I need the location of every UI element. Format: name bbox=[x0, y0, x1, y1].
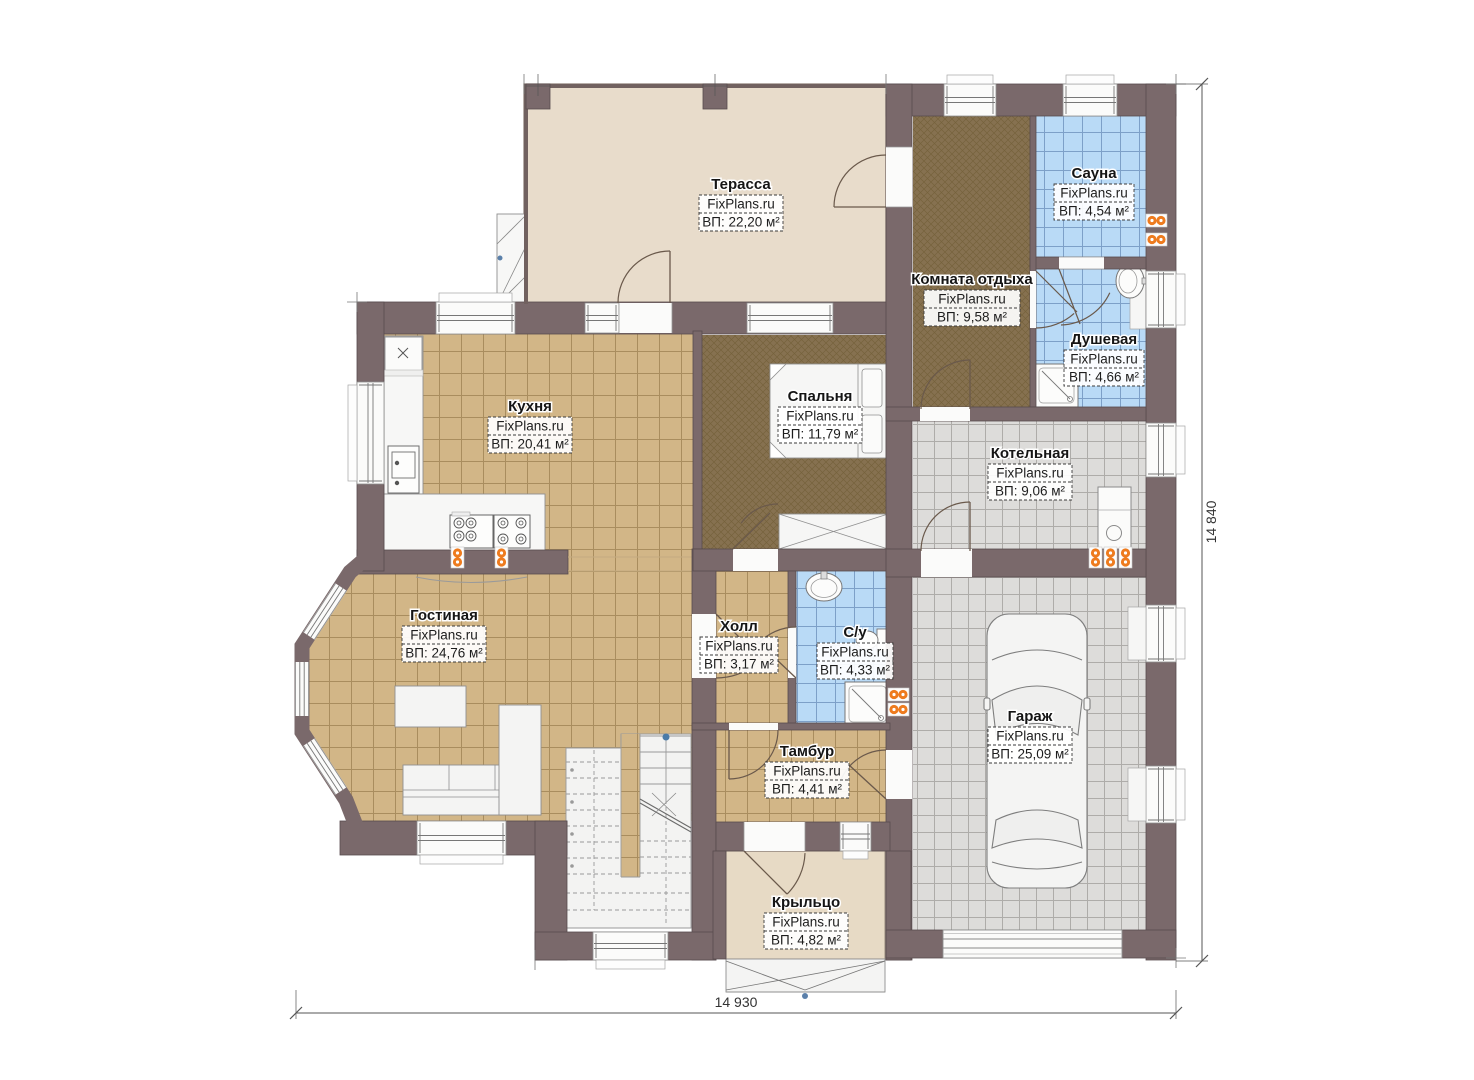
svg-text:FixPlans.ru: FixPlans.ru bbox=[496, 419, 564, 434]
svg-text:Терасса: Терасса bbox=[711, 176, 771, 193]
svg-text:ВП: 9,58 м²: ВП: 9,58 м² bbox=[937, 310, 1008, 325]
svg-text:FixPlans.ru: FixPlans.ru bbox=[938, 292, 1006, 307]
svg-text:FixPlans.ru: FixPlans.ru bbox=[786, 409, 854, 424]
svg-text:ВП: 25,09 м²: ВП: 25,09 м² bbox=[991, 747, 1069, 762]
svg-text:Гостиная: Гостиная bbox=[410, 607, 478, 624]
svg-text:ВП: 24,76 м²: ВП: 24,76 м² bbox=[405, 646, 483, 661]
svg-text:Кухня: Кухня bbox=[508, 398, 552, 415]
svg-text:Гараж: Гараж bbox=[1008, 708, 1053, 725]
svg-text:ВП: 4,66 м²: ВП: 4,66 м² bbox=[1069, 370, 1140, 385]
svg-text:FixPlans.ru: FixPlans.ru bbox=[1070, 352, 1138, 367]
svg-text:ВП: 20,41 м²: ВП: 20,41 м² bbox=[491, 437, 569, 452]
svg-text:Сауна: Сауна bbox=[1071, 165, 1117, 182]
svg-text:ВП: 4,41 м²: ВП: 4,41 м² bbox=[772, 782, 843, 797]
svg-text:FixPlans.ru: FixPlans.ru bbox=[707, 197, 775, 212]
svg-text:Тамбур: Тамбур bbox=[780, 743, 834, 760]
svg-text:Душевая: Душевая bbox=[1071, 331, 1137, 348]
svg-text:ВП: 4,33 м²: ВП: 4,33 м² bbox=[820, 663, 891, 678]
svg-text:ВП: 11,79 м²: ВП: 11,79 м² bbox=[782, 427, 859, 442]
svg-text:FixPlans.ru: FixPlans.ru bbox=[410, 628, 478, 643]
svg-text:ВП: 4,54 м²: ВП: 4,54 м² bbox=[1059, 204, 1130, 219]
svg-text:FixPlans.ru: FixPlans.ru bbox=[996, 729, 1064, 744]
svg-text:14 840: 14 840 bbox=[1203, 500, 1219, 543]
svg-text:ВП: 3,17 м²: ВП: 3,17 м² bbox=[704, 657, 775, 672]
svg-text:FixPlans.ru: FixPlans.ru bbox=[772, 915, 840, 930]
svg-text:Холл: Холл bbox=[720, 618, 758, 635]
svg-text:Котельная: Котельная bbox=[991, 445, 1070, 462]
svg-text:ВП: 22,20 м²: ВП: 22,20 м² bbox=[702, 215, 780, 230]
svg-text:14 930: 14 930 bbox=[715, 994, 758, 1010]
svg-text:Спальня: Спальня bbox=[788, 388, 853, 405]
svg-text:Комната отдыха: Комната отдыха bbox=[911, 271, 1033, 288]
svg-text:FixPlans.ru: FixPlans.ru bbox=[821, 645, 889, 660]
svg-text:ВП: 9,06 м²: ВП: 9,06 м² bbox=[995, 484, 1066, 499]
svg-text:С/у: С/у bbox=[843, 624, 867, 641]
svg-text:FixPlans.ru: FixPlans.ru bbox=[773, 764, 841, 779]
svg-text:Крыльцо: Крыльцо bbox=[772, 894, 840, 911]
svg-text:FixPlans.ru: FixPlans.ru bbox=[705, 639, 773, 654]
svg-text:ВП: 4,82 м²: ВП: 4,82 м² bbox=[771, 933, 842, 948]
svg-text:FixPlans.ru: FixPlans.ru bbox=[1060, 186, 1128, 201]
svg-text:FixPlans.ru: FixPlans.ru bbox=[996, 466, 1064, 481]
